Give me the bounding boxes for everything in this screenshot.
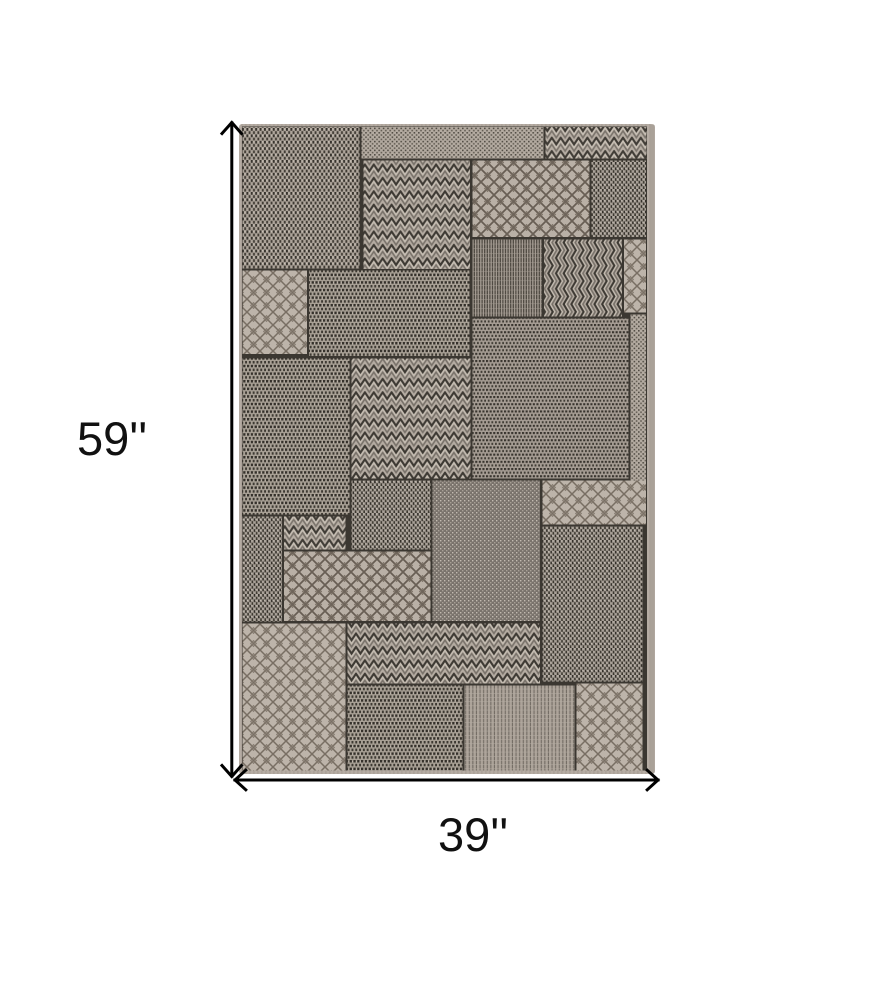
svg-text:59'': 59'' [77,412,147,465]
svg-text:39'': 39'' [438,808,508,861]
